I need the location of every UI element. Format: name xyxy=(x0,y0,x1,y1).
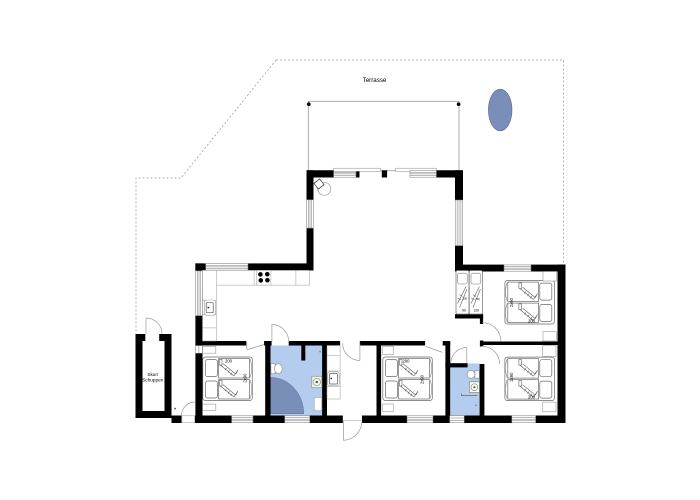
svg-text:Schuppen: Schuppen xyxy=(142,378,164,383)
svg-text:Terrasse: Terrasse xyxy=(363,77,387,84)
svg-text:2x90: 2x90 xyxy=(243,373,248,383)
svg-text:200: 200 xyxy=(225,359,233,364)
svg-text:2x90: 2x90 xyxy=(420,374,425,384)
svg-text:2x90: 2x90 xyxy=(509,372,514,382)
svg-text:200: 200 xyxy=(403,359,411,364)
svg-text:200: 200 xyxy=(475,297,480,301)
svg-text:90: 90 xyxy=(462,309,466,313)
svg-text:200: 200 xyxy=(528,319,536,324)
svg-text:2x90: 2x90 xyxy=(509,297,514,307)
svg-text:120: 120 xyxy=(473,309,479,313)
svg-text:200: 200 xyxy=(528,394,536,399)
svg-text:200: 200 xyxy=(463,297,468,301)
svg-text:Skur/: Skur/ xyxy=(147,372,159,377)
